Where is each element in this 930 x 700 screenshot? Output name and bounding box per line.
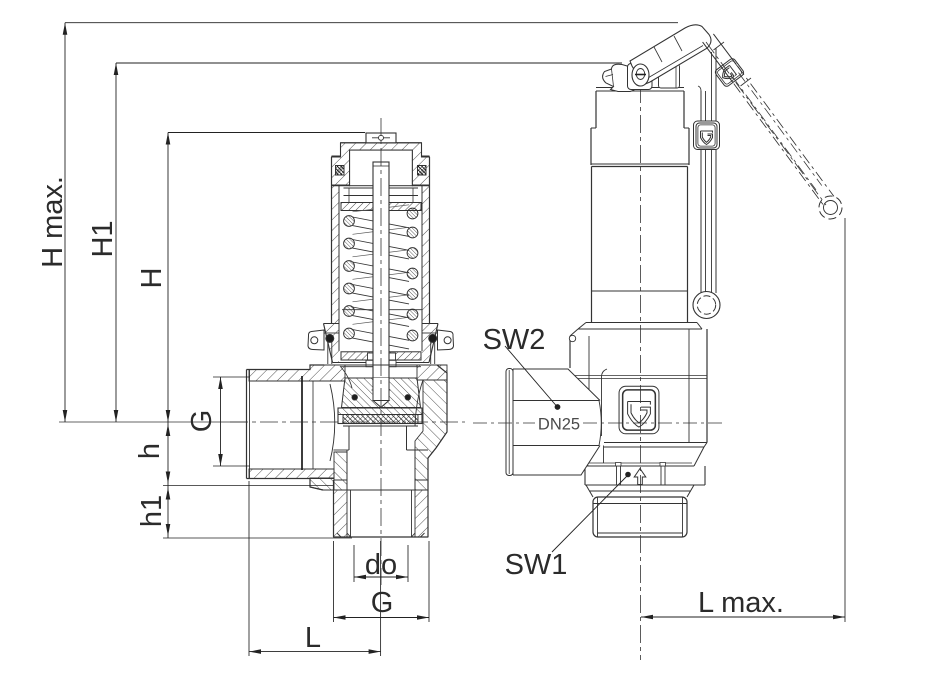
svg-text:G: G	[186, 410, 218, 433]
svg-text:L max.: L max.	[698, 587, 784, 619]
svg-text:SW1: SW1	[505, 549, 568, 581]
svg-text:h: h	[134, 443, 166, 459]
svg-text:L: L	[305, 622, 321, 654]
svg-text:H1: H1	[87, 220, 119, 257]
svg-text:h1: h1	[136, 495, 168, 527]
svg-text:H: H	[136, 268, 168, 289]
svg-text:G: G	[371, 587, 394, 619]
svg-text:DN25: DN25	[538, 416, 580, 434]
svg-text:do: do	[365, 549, 397, 581]
svg-text:SW2: SW2	[483, 324, 546, 356]
svg-text:H max.: H max.	[37, 176, 69, 268]
